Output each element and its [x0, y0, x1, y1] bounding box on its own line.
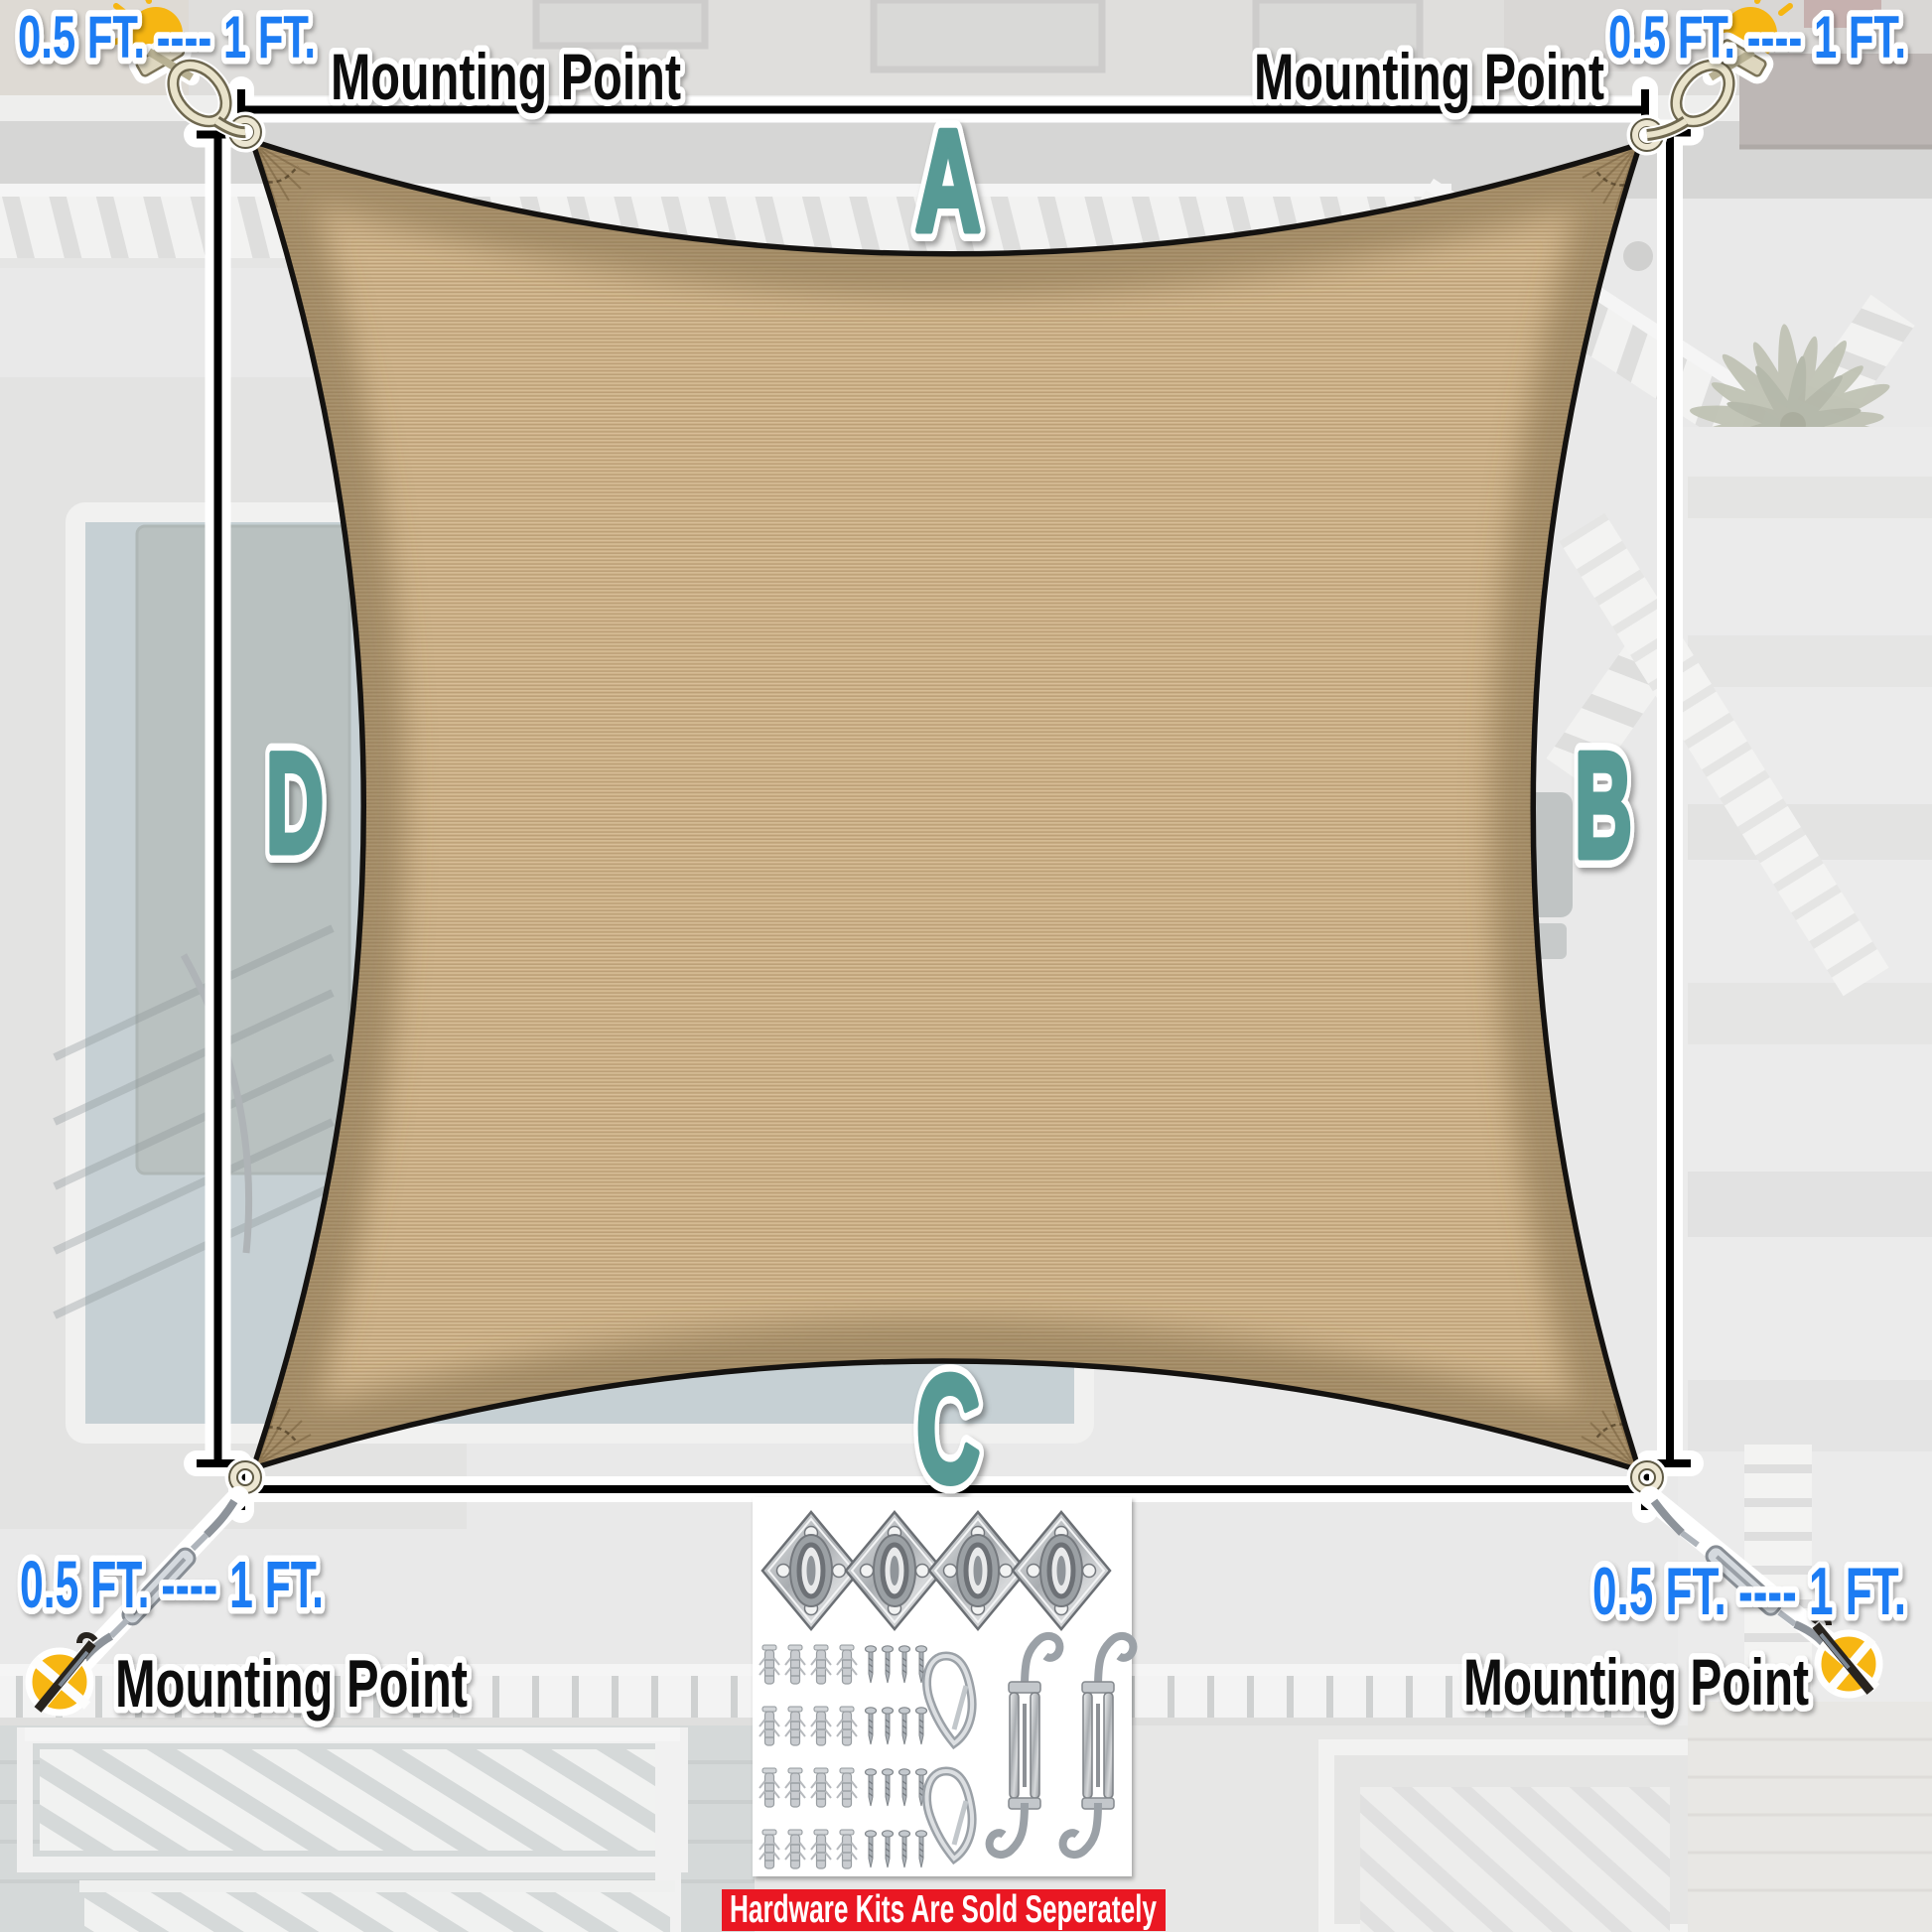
svg-text:Mounting Point: Mounting Point	[331, 40, 681, 113]
svg-text:C: C	[916, 1344, 980, 1514]
svg-text:D: D	[266, 725, 324, 883]
svg-text:0.5 FT. ---- 1 FT.: 0.5 FT. ---- 1 FT.	[20, 1548, 324, 1622]
svg-text:A: A	[915, 100, 981, 261]
svg-text:Hardware Kits Are Sold Seperat: Hardware Kits Are Sold Seperately	[730, 1888, 1157, 1931]
svg-text:Mounting Point: Mounting Point	[1254, 40, 1604, 113]
svg-text:0.5 FT. ---- 1 FT.: 0.5 FT. ---- 1 FT.	[1608, 4, 1906, 70]
svg-text:B: B	[1575, 721, 1632, 889]
svg-text:Mounting Point: Mounting Point	[1463, 1645, 1809, 1719]
svg-text:0.5 FT. ---- 1 FT.: 0.5 FT. ---- 1 FT.	[18, 4, 316, 70]
svg-text:Mounting Point: Mounting Point	[115, 1646, 468, 1722]
svg-text:0.5 FT. ---- 1 FT.: 0.5 FT. ---- 1 FT.	[1592, 1554, 1906, 1629]
